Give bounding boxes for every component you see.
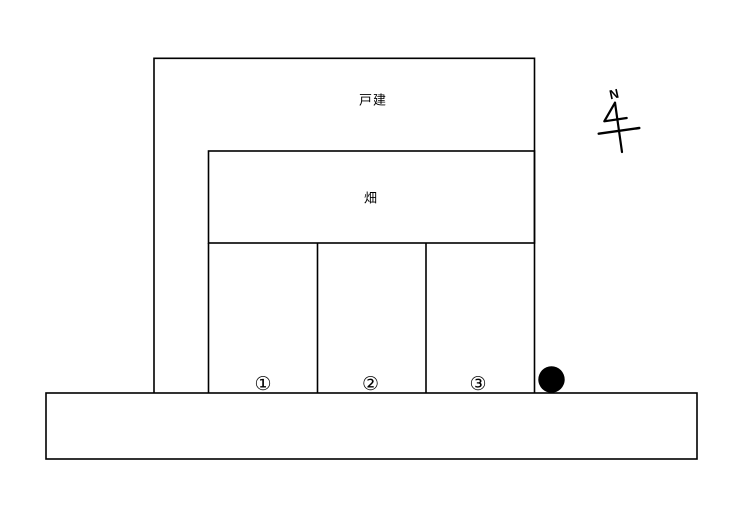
road-outline	[46, 393, 697, 459]
parking-lot-3-label: ③	[469, 374, 486, 395]
location-marker-dot	[538, 366, 564, 392]
house-parcel-label: 戸建	[359, 93, 387, 108]
north-compass: N	[599, 86, 640, 152]
compass-north-label: N	[608, 86, 620, 103]
site-plan-svg: 戸建 畑 ① ② ③ N	[0, 0, 744, 509]
site-plan-diagram: 戸建 畑 ① ② ③ N	[0, 0, 744, 509]
parking-lot-1-label: ①	[254, 374, 271, 395]
parking-lot-2-label: ②	[362, 374, 379, 395]
house-parcel-outline	[154, 58, 535, 393]
field-parcel-label: 畑	[364, 191, 378, 206]
compass-shaft	[615, 103, 622, 152]
